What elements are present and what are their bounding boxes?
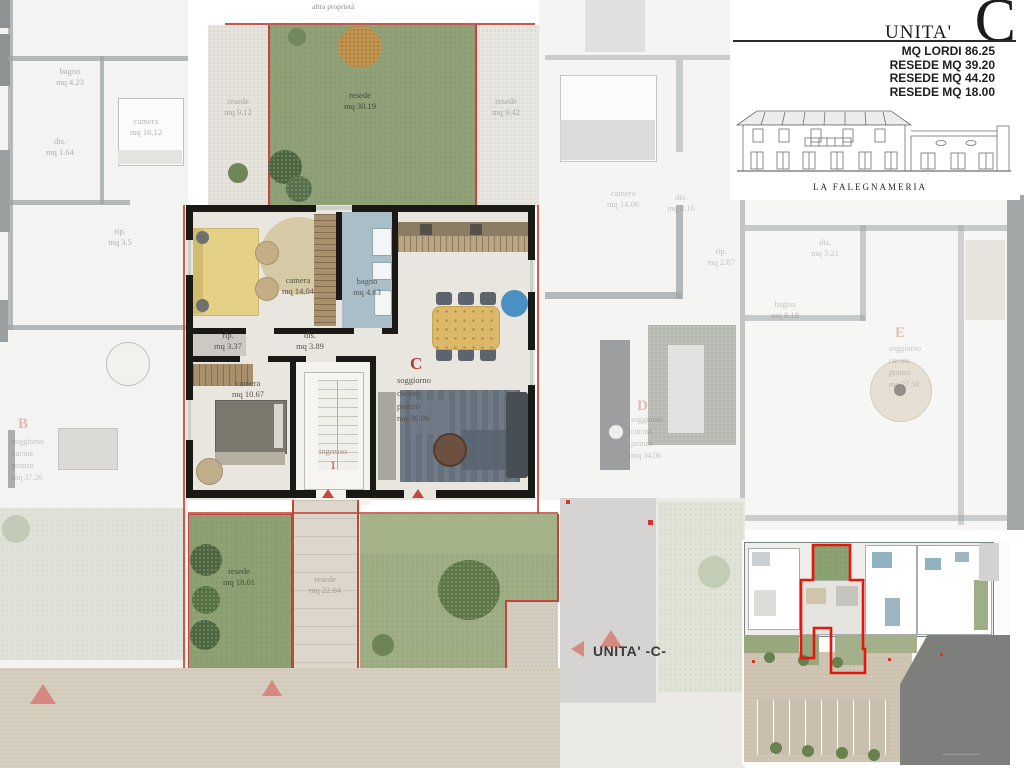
bush xyxy=(288,28,306,46)
minimap xyxy=(742,540,1010,765)
stat-line: RESEDE MQ 39.20 xyxy=(890,59,995,73)
tree-large xyxy=(438,560,500,620)
rip-label: rip.mq 3.37 xyxy=(206,330,250,352)
resede-top-right-label: resedemq 9.42 xyxy=(482,96,530,118)
shower xyxy=(372,228,392,256)
entry-marker xyxy=(412,489,424,498)
faded-kitchen-island xyxy=(600,340,630,470)
neighbor-a-bagno-label: bagnomq 4.23 xyxy=(48,66,92,88)
potted-plant xyxy=(228,163,248,183)
building-name: LA FALEGNAMERIA xyxy=(730,182,1010,192)
faded-unit-e: dis.mq 3.21 bagnomq 8.18 E soggiorno cuc… xyxy=(745,195,1008,530)
unit-c-letter: C xyxy=(410,354,422,374)
camera1-label: cameramq 14.04 xyxy=(272,275,324,297)
cooktop xyxy=(420,224,432,235)
stat-line: RESEDE MQ 18.00 xyxy=(890,86,995,100)
neighbor-e-bagno-label: bagnomq 8.18 xyxy=(763,299,807,321)
bush-cluster xyxy=(192,586,220,614)
neighbor-e-dis-label: dis.mq 3.21 xyxy=(803,237,847,259)
title-underline xyxy=(733,40,1016,42)
faded-sofa xyxy=(58,428,118,470)
resede-bottom-path-label: resedemq 22.64 xyxy=(300,574,350,596)
neighbor-d-dis-label: dis.mq 3.16 xyxy=(661,192,701,214)
unit-d-letter: D xyxy=(637,398,648,415)
neighbor-a-rip-label: rip.mq 3.5 xyxy=(100,226,140,248)
resede-top-label: resedemq 30.19 xyxy=(336,90,384,112)
stat-line: RESEDE MQ 44.20 xyxy=(890,72,995,86)
unit-b-letter: B xyxy=(18,416,28,433)
bagno-label: bagnomq 4.63 xyxy=(342,276,392,298)
neighbor-d-rip-label: rip.mq 2.87 xyxy=(701,246,741,268)
grey-band-right xyxy=(1007,195,1024,530)
blue-round-rug xyxy=(501,290,528,317)
bush-cluster xyxy=(286,176,312,202)
ingresso-label: ingresso xyxy=(310,446,356,456)
dining-table xyxy=(432,306,500,350)
dining-chair xyxy=(436,292,452,305)
dis-label: dis.mq 3.89 xyxy=(288,330,332,352)
minimap-unit-c-outline xyxy=(742,540,1010,765)
pouf xyxy=(255,241,279,265)
plaza-marker xyxy=(30,684,56,704)
unit-d-label: soggiorno cucina pranzo mq 34.06 xyxy=(631,414,663,462)
bush-cluster xyxy=(190,620,220,650)
neighbor-a-camera-label: cameramq 16.12 xyxy=(122,116,170,138)
unit-b-label: soggiorno cucina pranzo mq 37.26 xyxy=(12,436,44,484)
pillow xyxy=(196,299,209,312)
neighbor-d-camera-label: cameramq 14.06 xyxy=(599,188,647,210)
plaza-marker xyxy=(262,680,282,696)
unit-e-letter: E xyxy=(895,325,905,342)
wardrobe xyxy=(314,214,336,326)
entry-marker xyxy=(322,489,334,498)
stairs xyxy=(318,380,358,470)
ingresso-level: 1 xyxy=(329,458,337,473)
footer-unit-ref: UNITA' -C- xyxy=(593,643,666,659)
kitchen-counter xyxy=(398,222,528,236)
stat-line: MQ LORDI 86.25 xyxy=(890,45,995,59)
round-pouf xyxy=(196,458,223,485)
dining-chair xyxy=(480,292,496,305)
faded-left-units: bagnomq 4.23 cameramq 16.12 dis.mq 1.64 … xyxy=(0,0,188,768)
footer-marker-left xyxy=(571,641,584,657)
soggiorno-label: soggiorno cucina pranzo mq 36.06 xyxy=(397,374,431,425)
bush xyxy=(372,634,394,656)
kitchen-counter-front xyxy=(398,236,528,252)
bench xyxy=(215,452,285,465)
other-property-note: altra proprietà xyxy=(312,2,354,11)
floorplan-sheet: bagnomq 4.23 cameramq 16.12 dis.mq 1.64 … xyxy=(0,0,1024,768)
title-block: UNITA' C MQ LORDI 86.25 RESEDE MQ 39.20 … xyxy=(730,0,1020,200)
pillow xyxy=(196,231,209,244)
unit-e-label: soggiorno cucina pranzo mq 27.50 xyxy=(889,343,921,391)
camera2-label: cameramq 10.67 xyxy=(222,378,274,400)
neighbor-a-dis-label: dis.mq 1.64 xyxy=(40,136,80,158)
sink-kitchen xyxy=(470,224,482,235)
faded-table xyxy=(106,342,150,386)
faded-unit-d: cameramq 14.06 dis.mq 3.16 rip.mq 2.87 D… xyxy=(539,0,745,500)
dining-chair xyxy=(458,292,474,305)
resede-top-left-label: resedemq 9.12 xyxy=(214,96,262,118)
area-stats: MQ LORDI 86.25 RESEDE MQ 39.20 RESEDE MQ… xyxy=(890,45,995,99)
tree-orange xyxy=(338,26,382,68)
resede-bottom-left-label: resedemq 18.01 xyxy=(214,566,264,588)
elevation-drawing xyxy=(735,98,1015,178)
coffee-table xyxy=(433,433,467,467)
sofa xyxy=(506,392,528,478)
minimap-caption-line xyxy=(942,754,980,755)
faded-courtyard-right xyxy=(560,498,745,768)
tv-cabinet xyxy=(378,392,396,480)
